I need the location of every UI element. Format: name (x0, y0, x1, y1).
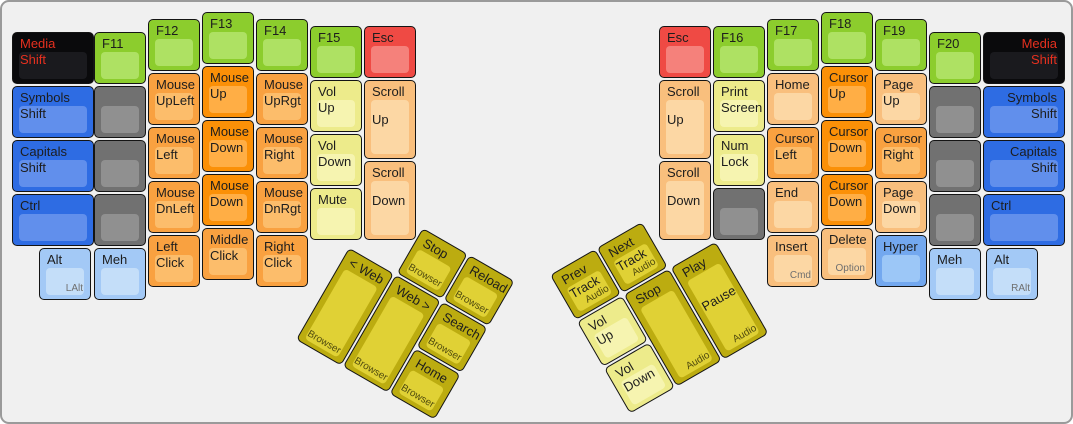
key-blank-right-3[interactable] (713, 188, 765, 240)
key-mouse-dnleft[interactable]: Mouse DnLeft (148, 181, 200, 233)
key-mouse-uprgt-label: Mouse UpRgt (264, 77, 304, 108)
key-ctrl-right-cap (990, 214, 1058, 241)
key-mouse-left[interactable]: Mouse Left (148, 127, 200, 179)
key-mouse-dnrgt[interactable]: Mouse DnRgt (256, 181, 308, 233)
key-meh-right-label: Meh (937, 252, 977, 268)
key-f11[interactable]: F11 (94, 32, 146, 84)
key-print-screen-label: Print Screen (721, 84, 761, 115)
key-capitals-shift-left[interactable]: Capitals Shift (12, 140, 94, 192)
key-f17-cap (774, 39, 812, 66)
key-blank-left-2-cap (101, 160, 139, 187)
key-cursor-right[interactable]: Cursor Right (875, 127, 927, 179)
key-media-shift-left[interactable]: Media Shift (12, 32, 94, 84)
key-f20[interactable]: F20 (929, 32, 981, 84)
key-mouse-down-low[interactable]: Mouse Down (202, 174, 254, 226)
key-f20-cap (936, 52, 974, 79)
key-mute-cap (317, 208, 355, 235)
key-end-label: End (775, 185, 815, 201)
key-delete[interactable]: DeleteOption (821, 228, 873, 280)
key-blank-left-1[interactable] (94, 86, 146, 138)
key-scroll-up-left[interactable]: ScrollUp (364, 80, 416, 159)
key-f12-label: F12 (156, 23, 196, 39)
key-f11-cap (101, 52, 139, 79)
key-vol-up-left[interactable]: Vol Up (310, 80, 362, 132)
key-f19-label: F19 (883, 23, 923, 39)
key-delete-label: Delete (829, 232, 869, 248)
key-mouse-upleft-label: Mouse UpLeft (156, 77, 196, 108)
key-mouse-dnleft-label: Mouse DnLeft (156, 185, 196, 216)
key-blank-left-1-cap (101, 106, 139, 133)
key-delete-sublabel: Option (836, 263, 865, 274)
key-page-down-label: Page Down (883, 185, 923, 216)
key-capitals-shift-right[interactable]: Capitals Shift (983, 140, 1065, 192)
key-mouse-down-mid[interactable]: Mouse Down (202, 120, 254, 172)
key-cursor-left-label: Cursor Left (775, 131, 815, 162)
key-page-down[interactable]: Page Down (875, 181, 927, 233)
key-scroll-down-right-label2: Down (667, 193, 700, 209)
key-vol-down-left[interactable]: Vol Down (310, 134, 362, 186)
key-media-shift-right-label: Media Shift (987, 36, 1057, 67)
key-right-click[interactable]: Right Click (256, 235, 308, 287)
key-f17-label: F17 (775, 23, 815, 39)
key-mouse-down-mid-label: Mouse Down (210, 124, 250, 155)
key-scroll-up-right-label: Scroll (667, 84, 707, 100)
key-f15[interactable]: F15 (310, 26, 362, 78)
key-alt-right-sublabel: RAlt (1011, 283, 1030, 294)
key-cursor-down-low-label: Cursor Down (829, 178, 869, 209)
key-end[interactable]: End (767, 181, 819, 233)
key-home-cap (774, 93, 812, 120)
key-f14-cap (263, 39, 301, 66)
key-ctrl-right-label: Ctrl (991, 198, 1061, 214)
key-cursor-down-mid-label: Cursor Down (829, 124, 869, 155)
key-hyper-label: Hyper (883, 239, 923, 255)
key-insert[interactable]: InsertCmd (767, 235, 819, 287)
key-meh-left[interactable]: Meh (94, 248, 146, 300)
key-meh-left-label: Meh (102, 252, 142, 268)
key-page-up-label: Page Up (883, 77, 923, 108)
key-alt-right-label: Alt (994, 252, 1034, 268)
key-hyper-cap (882, 255, 920, 282)
key-cursor-up[interactable]: Cursor Up (821, 66, 873, 118)
key-blank-right-4[interactable] (929, 194, 981, 246)
key-f16-label: F16 (721, 30, 761, 46)
key-scroll-down-right-label: Scroll (667, 165, 707, 181)
key-f17[interactable]: F17 (767, 19, 819, 71)
key-mouse-uprgt[interactable]: Mouse UpRgt (256, 73, 308, 125)
key-esc-left[interactable]: Esc (364, 26, 416, 78)
key-meh-right[interactable]: Meh (929, 248, 981, 300)
key-f18[interactable]: F18 (821, 12, 873, 64)
key-ctrl-left[interactable]: Ctrl (12, 194, 94, 246)
key-mouse-upleft[interactable]: Mouse UpLeft (148, 73, 200, 125)
key-cursor-up-label: Cursor Up (829, 70, 869, 101)
key-esc-right-cap (666, 46, 704, 73)
key-f19[interactable]: F19 (875, 19, 927, 71)
key-mouse-right[interactable]: Mouse Right (256, 127, 308, 179)
key-cursor-down-mid[interactable]: Cursor Down (821, 120, 873, 172)
key-f20-label: F20 (937, 36, 977, 52)
key-f18-cap (828, 32, 866, 59)
key-blank-right-2-cap (936, 160, 974, 187)
key-esc-right-label: Esc (667, 30, 707, 46)
key-num-lock-label: Num Lock (721, 138, 761, 169)
key-mouse-down-low-label: Mouse Down (210, 178, 250, 209)
key-capitals-shift-right-label: Capitals Shift (987, 144, 1057, 175)
key-f13-cap (209, 32, 247, 59)
key-esc-left-label: Esc (372, 30, 412, 46)
key-scroll-down-left-label2: Down (372, 193, 405, 209)
key-f13-label: F13 (210, 16, 250, 32)
key-insert-sublabel: Cmd (790, 270, 811, 281)
key-middle-click[interactable]: Middle Click (202, 228, 254, 280)
key-f15-label: F15 (318, 30, 358, 46)
key-symbols-shift-right[interactable]: Symbols Shift (983, 86, 1065, 138)
key-esc-left-cap (371, 46, 409, 73)
key-alt-left[interactable]: AltLAlt (39, 248, 91, 300)
key-cursor-down-low[interactable]: Cursor Down (821, 174, 873, 226)
key-mouse-dnrgt-label: Mouse DnRgt (264, 185, 304, 216)
key-blank-right-4-cap (936, 214, 974, 241)
key-f18-label: F18 (829, 16, 869, 32)
key-f16-cap (720, 46, 758, 73)
key-blank-right-2[interactable] (929, 140, 981, 192)
key-esc-right[interactable]: Esc (659, 26, 711, 78)
key-end-cap (774, 201, 812, 228)
key-f13[interactable]: F13 (202, 12, 254, 64)
key-blank-left-3[interactable] (94, 194, 146, 246)
key-hyper[interactable]: Hyper (875, 235, 927, 287)
key-alt-right[interactable]: AltRAlt (986, 248, 1038, 300)
key-home-label: Home (775, 77, 815, 93)
key-f12-cap (155, 39, 193, 66)
key-f14-label: F14 (264, 23, 304, 39)
key-scroll-up-right-label2: Up (667, 112, 684, 128)
key-symbols-shift-right-label: Symbols Shift (987, 90, 1057, 121)
key-meh-left-cap (101, 268, 139, 295)
key-scroll-down-left-label: Scroll (372, 165, 412, 181)
key-right-click-label: Right Click (264, 239, 304, 270)
key-ctrl-right[interactable]: Ctrl (983, 194, 1065, 246)
key-f11-label: F11 (102, 36, 142, 52)
key-alt-left-label: Alt (47, 252, 87, 268)
key-symbols-shift-left[interactable]: Symbols Shift (12, 86, 94, 138)
key-middle-click-label: Middle Click (210, 232, 250, 263)
key-print-screen[interactable]: Print Screen (713, 80, 765, 132)
key-capitals-shift-left-label: Capitals Shift (20, 144, 90, 175)
key-blank-right-3-cap (720, 208, 758, 235)
key-insert-label: Insert (775, 239, 815, 255)
key-f12[interactable]: F12 (148, 19, 200, 71)
keyboard-layout-canvas: Media ShiftF11F12F13F14F15EscSymbols Shi… (0, 0, 1073, 424)
key-mouse-up-label: Mouse Up (210, 70, 250, 101)
key-f14[interactable]: F14 (256, 19, 308, 71)
key-num-lock[interactable]: Num Lock (713, 134, 765, 186)
key-mouse-left-label: Mouse Left (156, 131, 196, 162)
key-media-shift-right[interactable]: Media Shift (983, 32, 1065, 84)
key-left-click-label: Left Click (156, 239, 196, 270)
key-vol-up-left-label: Vol Up (318, 84, 358, 115)
key-page-up[interactable]: Page Up (875, 73, 927, 125)
key-vol-down-left-label: Vol Down (318, 138, 358, 169)
key-mute[interactable]: Mute (310, 188, 362, 240)
key-scroll-up-right[interactable]: ScrollUp (659, 80, 711, 159)
key-ctrl-left-label: Ctrl (20, 198, 90, 214)
key-media-shift-left-label: Media Shift (20, 36, 90, 67)
key-f15-cap (317, 46, 355, 73)
key-meh-right-cap (936, 268, 974, 295)
key-mouse-right-label: Mouse Right (264, 131, 304, 162)
key-f16[interactable]: F16 (713, 26, 765, 78)
key-alt-left-sublabel: LAlt (66, 283, 83, 294)
key-cursor-left[interactable]: Cursor Left (767, 127, 819, 179)
key-left-click[interactable]: Left Click (148, 235, 200, 287)
key-blank-right-1-cap (936, 106, 974, 133)
key-mouse-up[interactable]: Mouse Up (202, 66, 254, 118)
key-blank-left-3-cap (101, 214, 139, 241)
key-blank-right-1[interactable] (929, 86, 981, 138)
key-home[interactable]: Home (767, 73, 819, 125)
key-scroll-up-left-label: Scroll (372, 84, 412, 100)
key-ctrl-left-cap (19, 214, 87, 241)
key-scroll-up-left-label2: Up (372, 112, 389, 128)
key-cursor-right-label: Cursor Right (883, 131, 923, 162)
key-symbols-shift-left-label: Symbols Shift (20, 90, 90, 121)
key-f19-cap (882, 39, 920, 66)
key-mute-label: Mute (318, 192, 358, 208)
key-blank-left-2[interactable] (94, 140, 146, 192)
